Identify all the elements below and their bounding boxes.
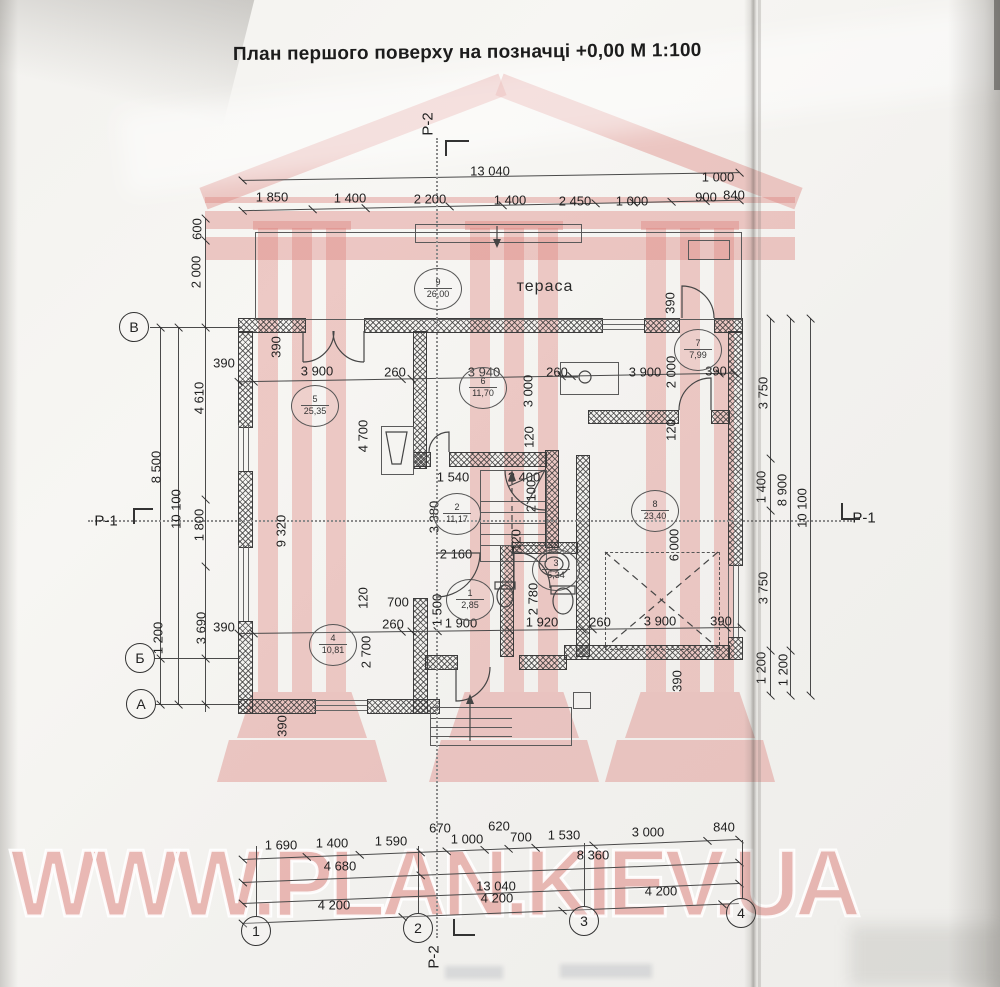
dimension-tick xyxy=(355,850,364,858)
dimension-label: 6 000 xyxy=(667,529,682,562)
dimension-label: 1 200 xyxy=(776,654,791,687)
dimension-label: 1 800 xyxy=(192,509,207,542)
edge-line xyxy=(415,232,580,233)
dimension-label: 260 xyxy=(384,365,406,380)
section-label: Р-2 xyxy=(426,945,443,968)
room-tag-7: 77,99 xyxy=(674,329,722,371)
dimension-tick xyxy=(558,906,567,914)
edge-line xyxy=(430,727,512,728)
dimension-tick xyxy=(766,691,775,700)
dimension-label: 2 780 xyxy=(526,583,541,616)
dimension-label: 620 xyxy=(488,819,510,834)
dimension-label: 120 xyxy=(356,587,371,609)
fireplace-outline xyxy=(381,426,414,475)
wall-segment xyxy=(728,637,743,660)
room-number: 9 xyxy=(424,277,452,289)
dimension-label: 1 540 xyxy=(437,470,470,485)
wall-segment xyxy=(238,471,253,548)
dimension-label: 10 100 xyxy=(795,488,810,528)
terrace-step xyxy=(415,224,582,243)
room-number: 7 xyxy=(684,338,712,350)
dimension-label: 260 xyxy=(382,617,404,632)
window xyxy=(238,425,250,471)
dimension-label: 700 xyxy=(510,830,532,845)
dimension-label: 10 100 xyxy=(169,489,184,529)
dimension-label: 1 530 xyxy=(548,828,581,843)
dimension-tick xyxy=(786,691,795,700)
dimension-label: 2 160 xyxy=(440,547,473,562)
room-tag-8: 823,40 xyxy=(631,490,679,532)
dimension-label: 1 400 xyxy=(494,193,527,208)
room-tag-4: 410,81 xyxy=(309,624,357,666)
dimension-label: 120 xyxy=(522,426,537,448)
dimension-label: 4 200 xyxy=(481,891,514,906)
dimension-label: 1 590 xyxy=(375,834,408,849)
room-number: 3 xyxy=(542,558,570,570)
room-area: 5,34 xyxy=(547,570,565,582)
window xyxy=(314,699,367,711)
room-area: 7,99 xyxy=(689,350,707,362)
dimension-line xyxy=(790,318,791,695)
dimension-label: 670 xyxy=(429,821,451,836)
edge-line xyxy=(430,718,512,719)
floor-plan-drawing: План першого поверху на позначці +0,00 М… xyxy=(0,0,1000,987)
dimension-label: 2 100 xyxy=(524,480,539,513)
dimension-label: 390 xyxy=(213,620,235,635)
scanned-floor-plan-page: WWW.PLAN.KIEV.UA План першого поверху на… xyxy=(0,0,1000,987)
dimension-label: 1 400 xyxy=(334,191,367,206)
room-number: 5 xyxy=(301,394,329,406)
dimension-tick xyxy=(238,899,247,907)
room-tag-1: 12,85 xyxy=(446,579,494,621)
dimension-label: 2 700 xyxy=(359,636,374,669)
wall-segment xyxy=(364,318,603,333)
dimension-tick xyxy=(201,562,210,571)
dimension-label: 4 700 xyxy=(356,420,371,453)
dimension-label: 4 200 xyxy=(645,884,678,899)
dimension-line xyxy=(150,327,240,328)
dimension-tick xyxy=(302,852,311,860)
dimension-label: 900 xyxy=(695,190,717,205)
room-number: 6 xyxy=(469,376,497,388)
dimension-label: 1 200 xyxy=(754,652,769,685)
dimension-label: 4 680 xyxy=(324,859,357,874)
dimension-line xyxy=(155,658,240,659)
dimension-label: 260 xyxy=(589,615,611,630)
dimension-label: 8 900 xyxy=(775,474,790,507)
dimension-label: 390 xyxy=(710,614,732,629)
dimension-label: 2 200 xyxy=(414,192,447,207)
dimension-tick xyxy=(445,202,454,211)
dimension-tick xyxy=(766,454,775,463)
dimension-tick xyxy=(238,206,247,215)
wall-segment xyxy=(238,699,316,714)
section-corner-mark xyxy=(445,140,469,156)
room-number: 4 xyxy=(319,633,347,645)
room-area: 11,70 xyxy=(472,388,494,400)
wall-segment xyxy=(644,318,680,333)
room-tag-6: 611,70 xyxy=(459,367,507,409)
wall-segment xyxy=(519,655,567,670)
section-corner-mark xyxy=(133,508,153,524)
wall-segment xyxy=(449,452,547,467)
dimension-line xyxy=(155,704,240,705)
dimension-tick xyxy=(718,900,727,908)
dimension-tick xyxy=(703,836,712,844)
dimension-tick xyxy=(766,314,775,323)
page-title: План першого поверху на позначці +0,00 М… xyxy=(233,40,702,66)
dimension-label: 260 xyxy=(546,365,568,380)
room-number: 8 xyxy=(641,499,669,511)
section-label: Р-2 xyxy=(420,112,437,135)
dimension-label: 1 000 xyxy=(451,832,484,847)
dimension-label: 2 000 xyxy=(664,356,679,389)
kitchen-counter xyxy=(560,362,619,395)
axis-bubble-4: 4 xyxy=(726,898,756,928)
dimension-line xyxy=(742,840,743,898)
room-tag-9: 926,00 xyxy=(414,268,462,310)
dimension-tick xyxy=(238,176,247,185)
dimension-line xyxy=(242,200,739,212)
dimension-tick xyxy=(504,844,513,852)
dimension-label: 120 xyxy=(664,419,679,441)
dimension-label: 3 900 xyxy=(629,365,662,380)
dimension-label: 9 320 xyxy=(274,515,289,548)
dimension-label: 840 xyxy=(723,188,745,203)
dimension-label: 3 690 xyxy=(194,612,209,645)
dimension-label: 8 360 xyxy=(577,848,610,863)
terrace-landing xyxy=(688,240,730,260)
dimension-label: 3 000 xyxy=(521,375,536,408)
window xyxy=(238,545,250,621)
wall-segment xyxy=(711,410,730,424)
dimension-label: 120 xyxy=(509,529,524,551)
dimension-label: 3 900 xyxy=(644,614,677,629)
dimension-tick xyxy=(591,199,600,208)
axis-bubble-Б: Б xyxy=(125,643,155,673)
room-area: 10,81 xyxy=(322,645,345,657)
dimension-label: 1 400 xyxy=(316,836,349,851)
dimension-label: 390 xyxy=(213,356,235,371)
dimension-label: 4 200 xyxy=(318,898,351,913)
edge-line xyxy=(430,736,512,737)
dimension-label: 1 000 xyxy=(702,170,735,185)
dimension-tick xyxy=(766,506,775,515)
dimension-tick xyxy=(238,855,247,863)
room-tag-2: 211,17 xyxy=(433,493,481,535)
section-corner-mark xyxy=(453,919,475,936)
dimension-label: 13 040 xyxy=(470,164,510,179)
dimension-label: 840 xyxy=(713,820,735,835)
dimension-label: 8 500 xyxy=(149,451,164,484)
dimension-label: 600 xyxy=(190,218,205,240)
dimension-label: 390 xyxy=(269,336,284,358)
porch-pier xyxy=(573,692,591,709)
wall-segment xyxy=(425,655,458,670)
dimension-label: 390 xyxy=(275,715,290,737)
dimension-tick xyxy=(806,314,815,323)
room-area: 25,35 xyxy=(304,406,327,418)
section-corner-mark xyxy=(841,503,860,520)
parking-dashed-area xyxy=(605,552,720,650)
dimension-line xyxy=(418,846,419,913)
axis-bubble-А: А xyxy=(126,689,156,719)
dimension-label: 1 920 xyxy=(526,615,559,630)
axis-bubble-2: 2 xyxy=(403,913,433,943)
dimension-tick xyxy=(735,168,744,177)
wall-segment xyxy=(413,452,431,467)
dimension-label: 1 000 xyxy=(616,194,649,209)
section-label: Р-1 xyxy=(94,513,117,530)
wall-segment xyxy=(728,331,743,566)
dimension-tick xyxy=(531,843,540,851)
dimension-tick xyxy=(806,691,815,700)
room-area: 11,17 xyxy=(446,514,468,526)
dimension-label: 3 750 xyxy=(756,377,771,410)
dimension-label: 1 500 xyxy=(430,594,445,627)
edge-line xyxy=(480,523,545,524)
room-number: 1 xyxy=(456,588,484,600)
dimension-tick xyxy=(201,495,210,504)
dimension-tick xyxy=(786,314,795,323)
room-tag-5: 525,35 xyxy=(291,385,339,427)
axis-bubble-1: 1 xyxy=(241,916,271,946)
dimension-tick xyxy=(667,197,676,206)
dimension-line xyxy=(810,318,811,695)
axis-bubble-В: В xyxy=(119,312,149,342)
room-tag-3: 35,34 xyxy=(532,549,580,591)
dimension-label: 1 690 xyxy=(265,838,298,853)
room-area: 26,00 xyxy=(427,289,450,301)
axis-bubble-3: 3 xyxy=(569,906,599,936)
dimension-line xyxy=(242,903,739,924)
dimension-label: 390 xyxy=(670,670,685,692)
wall-segment xyxy=(413,331,427,469)
dimension-tick xyxy=(308,205,317,214)
dimension-label: 700 xyxy=(387,595,409,610)
dimension-label: 3 750 xyxy=(756,572,771,605)
room-number: 2 xyxy=(443,502,471,514)
dimension-label: 390 xyxy=(663,292,678,314)
wall-segment xyxy=(545,450,559,548)
dimension-line xyxy=(256,846,257,916)
dimension-label: 1 850 xyxy=(256,190,289,205)
dimension-label: 2 450 xyxy=(559,194,592,209)
dimension-tick xyxy=(238,878,247,886)
dimension-label: 3 000 xyxy=(632,825,665,840)
room-area: 2,85 xyxy=(461,600,479,612)
room-area: 23,40 xyxy=(644,511,667,523)
dimension-tick xyxy=(442,847,451,855)
dimension-label: 2 000 xyxy=(189,256,204,289)
dimension-label: 3 900 xyxy=(301,364,334,379)
section-axis-p2 xyxy=(436,138,438,938)
dimension-line xyxy=(770,318,771,695)
dimension-label: 1 400 xyxy=(754,471,769,504)
dimension-label: 4 610 xyxy=(192,382,207,415)
